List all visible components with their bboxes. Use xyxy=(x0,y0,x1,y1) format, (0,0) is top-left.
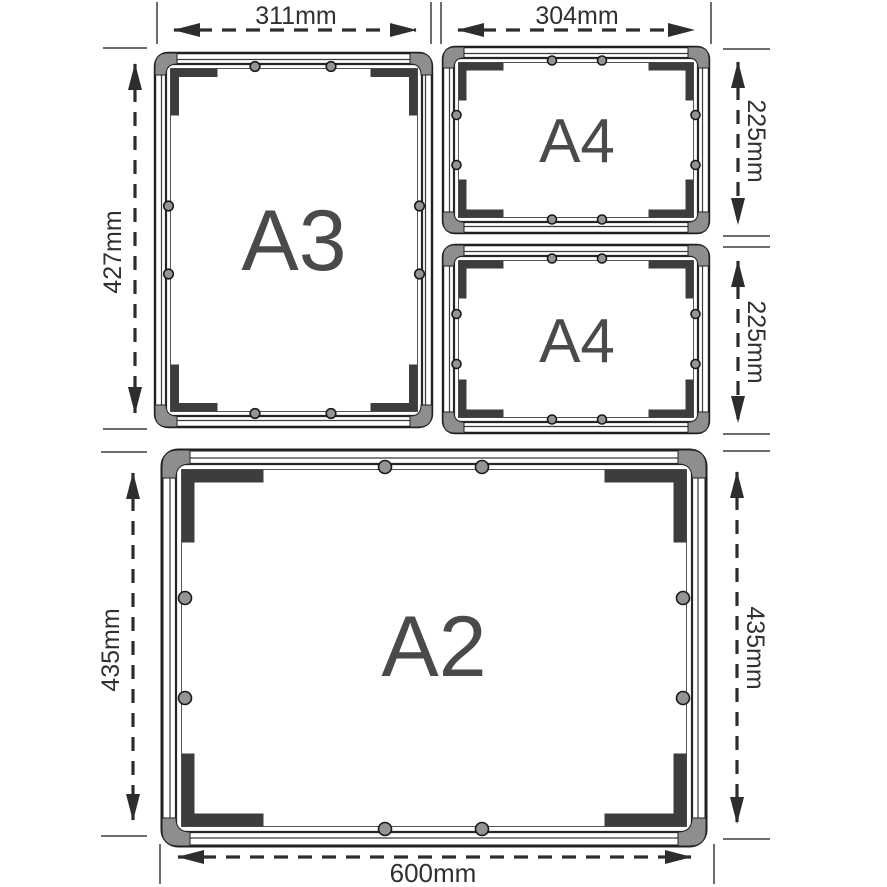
screw-icon xyxy=(548,215,557,224)
a4-bottom-size-label: A4 xyxy=(539,307,615,376)
dim-a4-top-height: 225mm xyxy=(723,49,770,236)
dim-a3-height-label: 427mm xyxy=(99,210,127,293)
screw-icon xyxy=(452,111,461,120)
screw-icon xyxy=(598,415,607,424)
screw-icon xyxy=(691,161,700,170)
dim-a4-width: 304mm xyxy=(441,2,711,44)
screw-icon xyxy=(476,823,489,836)
screw-icon xyxy=(452,310,461,319)
screw-icon xyxy=(691,360,700,369)
screw-icon xyxy=(379,823,392,836)
dim-a2-width-label: 600mm xyxy=(390,858,477,887)
screw-icon xyxy=(677,592,690,605)
screw-icon xyxy=(250,409,260,419)
dim-a4-bottom-height: 225mm xyxy=(723,247,770,434)
screw-icon xyxy=(164,201,174,211)
dim-a2-height-left: 435mm xyxy=(97,452,147,836)
screw-icon xyxy=(476,461,489,474)
a4-bottom-frame: A4 xyxy=(443,245,709,433)
dim-a2-height-right-label: 435mm xyxy=(741,606,769,689)
screw-icon xyxy=(598,254,607,263)
screw-icon xyxy=(326,62,336,72)
dim-a3-width-label: 311mm xyxy=(255,2,337,30)
screw-icon xyxy=(548,254,557,263)
screw-icon xyxy=(677,692,690,705)
dim-a2-height-left-label: 435mm xyxy=(97,608,125,691)
screw-icon xyxy=(598,215,607,224)
dim-a2-height-right: 435mm xyxy=(723,451,770,839)
a2-frame: A2 xyxy=(162,450,706,846)
screw-icon xyxy=(179,692,192,705)
screw-icon xyxy=(415,201,425,211)
screw-icon xyxy=(598,56,607,65)
a4-top-frame: A4 xyxy=(443,47,709,233)
dim-a3-height: 427mm xyxy=(99,48,147,429)
screw-icon xyxy=(452,360,461,369)
screw-icon xyxy=(379,461,392,474)
dim-a2-width: 600mm xyxy=(160,844,714,887)
screw-icon xyxy=(164,269,174,279)
a4-top-size-label: A4 xyxy=(539,107,615,176)
screw-icon xyxy=(548,56,557,65)
screw-icon xyxy=(691,310,700,319)
screw-icon xyxy=(415,269,425,279)
dim-a4-width-label: 304mm xyxy=(535,2,618,30)
screw-icon xyxy=(326,409,336,419)
a3-frame: A3 xyxy=(155,53,432,427)
dim-a4-bottom-height-label: 225mm xyxy=(742,300,770,383)
dim-a4-top-height-label: 225mm xyxy=(742,99,770,182)
screw-icon xyxy=(452,161,461,170)
screw-icon xyxy=(179,592,192,605)
screw-icon xyxy=(548,415,557,424)
screw-icon xyxy=(250,62,260,72)
a3-size-label: A3 xyxy=(241,193,346,289)
a2-size-label: A2 xyxy=(381,599,486,695)
frame-size-diagram: A3 A4 xyxy=(0,0,887,887)
dim-a3-width: 311mm xyxy=(157,2,431,44)
screw-icon xyxy=(691,111,700,120)
